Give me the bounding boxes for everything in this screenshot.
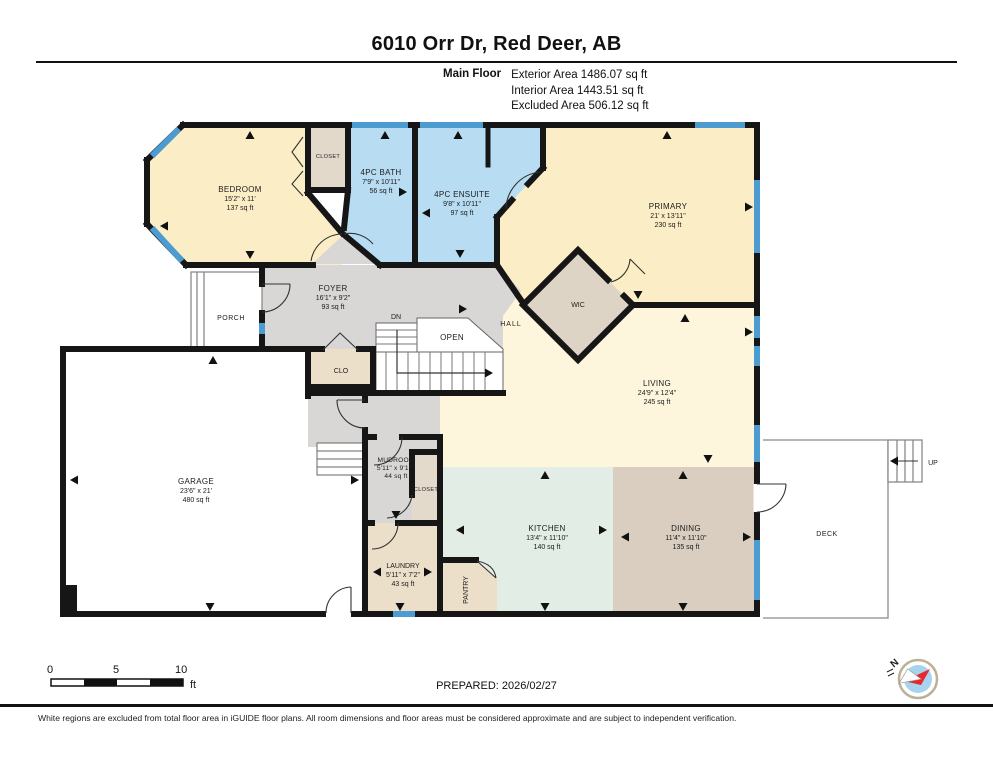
label-bath-area: 56 sq ft [370,188,393,195]
porch-outline [191,272,262,348]
label-foyer: FOYER [318,284,347,293]
garage-wall-pillar [63,585,77,614]
label-foyer-area: 93 sq ft [322,304,345,311]
garage-steps [317,443,363,475]
compass-icon: N [885,652,945,704]
header-divider [36,61,957,63]
label-kitchen-dims: 13'4" x 11'10" [526,535,568,542]
label-mudroom-area: 44 sq ft [384,473,407,480]
label-pantry: PANTRY [463,576,470,604]
label-wic: WIC [571,302,585,309]
scale-0: 0 [47,664,53,676]
label-living-area: 245 sq ft [644,399,671,406]
label-ensuite: 4PC ENSUITE [434,190,490,199]
label-deck: DECK [816,531,837,538]
page-title: 6010 Orr Dr, Red Deer, AB [0,33,993,56]
label-living-dims: 24'9" x 12'4" [638,390,677,397]
label-garage: GARAGE [178,477,214,486]
label-dn: DN [391,314,401,321]
prepared-date: PREPARED: 2026/02/27 [0,680,993,692]
label-laundry-area: 43 sq ft [392,581,415,588]
label-bedroom-dims: 15'2" x 11' [224,196,256,203]
label-dining-dims: 11'4" x 11'10" [665,535,707,542]
floor-plan: BEDROOM 15'2" x 11' 137 sq ft CLOSET 4PC… [0,110,993,665]
footer-divider [0,704,993,707]
label-primary-dims: 21' x 13'11" [650,213,686,220]
label-closet-bedroom: CLOSET [316,154,340,160]
label-garage-dims: 23'6" x 21' [180,488,212,495]
label-kitchen-area: 140 sq ft [534,544,561,551]
label-primary: PRIMARY [649,202,688,211]
deck-outline [763,440,888,618]
label-laundry: LAUNDRY [386,563,420,570]
label-primary-area: 230 sq ft [655,222,682,229]
label-porch: PORCH [217,315,245,322]
label-bedroom-area: 137 sq ft [227,205,254,212]
label-open: OPEN [440,333,464,342]
label-mudroom-dims: 5'11" x 9'10" [377,465,416,472]
label-kitchen: KITCHEN [528,524,565,533]
label-foyer-dims: 16'1" x 9'2" [316,295,351,302]
label-laundry-dims: 5'11" x 7'2" [386,572,420,579]
floor-stats: Main Floor Exterior Area 1486.07 sq ft I… [443,68,649,115]
label-up: UP [928,460,938,467]
label-bath: 4PC BATH [361,168,402,177]
compass-n-label: N [889,657,902,670]
label-bedroom: BEDROOM [218,185,261,194]
floor-label: Main Floor [443,68,501,115]
label-ensuite-dims: 9'8" x 10'11" [443,201,481,208]
label-living: LIVING [643,379,671,388]
label-ensuite-area: 97 sq ft [451,210,474,217]
disclaimer-text: White regions are excluded from total fl… [38,713,968,723]
stat-interior-area: Interior Area 1443.51 sq ft [511,84,648,100]
floorplan-page: 6010 Orr Dr, Red Deer, AB Main Floor Ext… [0,0,993,768]
label-garage-area: 480 sq ft [183,497,210,504]
scale-5: 5 [113,664,119,676]
scale-10: 10 [175,664,187,676]
label-hall: HALL [500,321,522,328]
label-dining-area: 135 sq ft [673,544,700,551]
label-bath-dims: 7'9" x 10'11" [362,179,400,186]
label-closet-mudroom: CLOSET [414,487,438,493]
label-dining: DINING [671,524,701,533]
label-clo: CLO [334,368,349,375]
stat-exterior-area: Exterior Area 1486.07 sq ft [511,68,648,84]
label-mudroom: MUDROOM [378,457,415,464]
